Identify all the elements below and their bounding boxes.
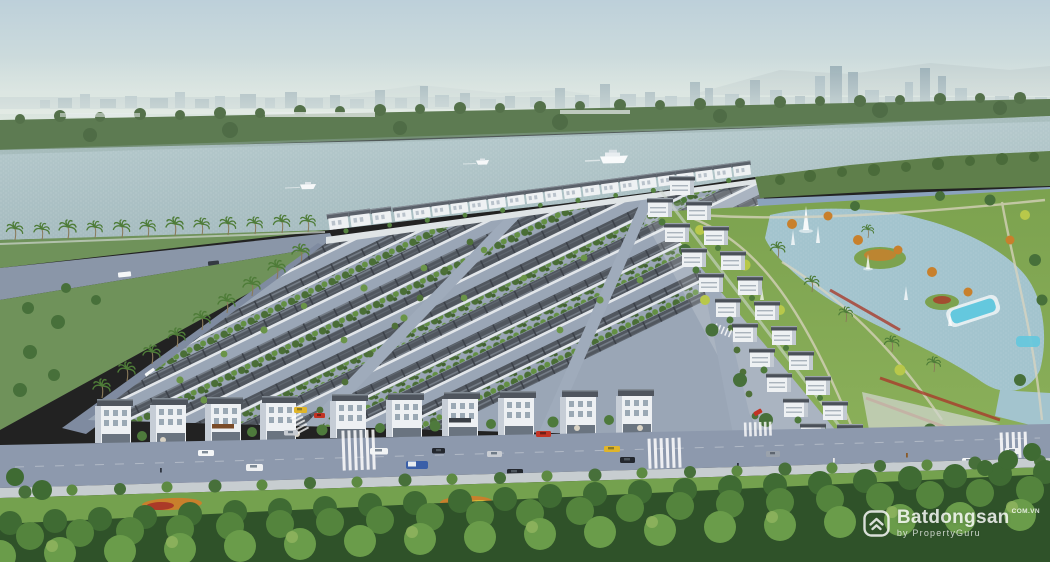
car xyxy=(604,446,620,452)
car xyxy=(370,448,388,455)
car xyxy=(432,448,445,454)
scene-canvas xyxy=(0,0,1050,562)
car xyxy=(487,451,502,457)
car xyxy=(294,407,307,413)
distant-villas xyxy=(265,112,375,117)
watermark: Batdongsan COM.VN by PropertyGuru xyxy=(863,508,1040,538)
watermark-byline: by PropertyGuru xyxy=(897,529,1040,538)
awning xyxy=(449,418,471,423)
pickup-truck xyxy=(406,461,428,469)
car xyxy=(246,464,263,471)
car xyxy=(766,451,780,457)
awning xyxy=(212,424,234,429)
car xyxy=(536,431,551,437)
watermark-brand-suffix: COM.VN xyxy=(1012,509,1040,516)
watermark-text: Batdongsan COM.VN by PropertyGuru xyxy=(897,508,1040,538)
car xyxy=(284,430,298,436)
batdongsan-logo-icon xyxy=(863,510,890,537)
car xyxy=(620,457,635,463)
car xyxy=(314,413,325,418)
car xyxy=(198,450,214,456)
aerial-render-image: Batdongsan COM.VN by PropertyGuru xyxy=(0,0,1050,562)
watermark-brand: Batdongsan xyxy=(897,508,1010,527)
